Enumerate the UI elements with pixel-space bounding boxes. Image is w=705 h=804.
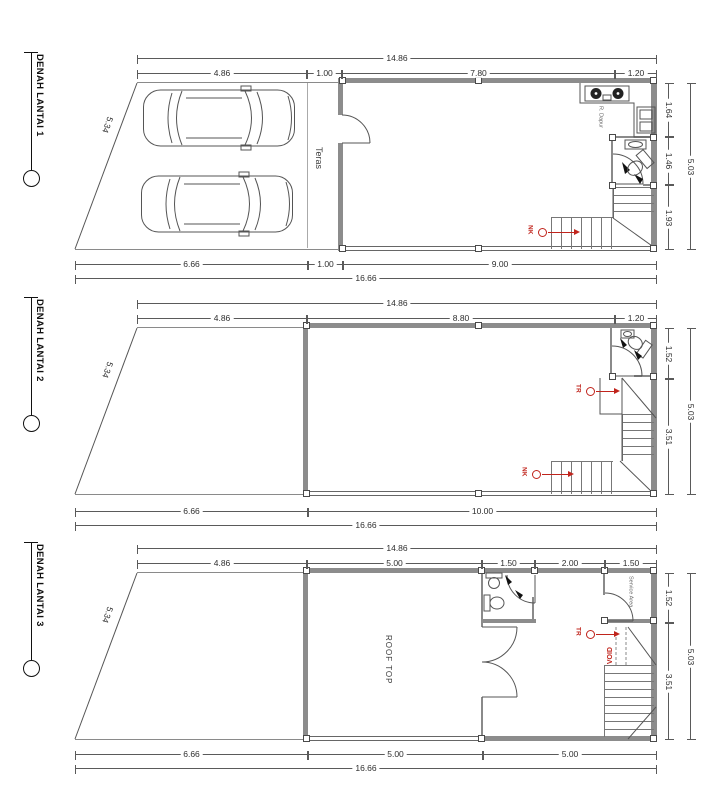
stair-direction-arrow <box>596 391 618 392</box>
dim-line: 3.51 <box>668 623 669 740</box>
dim-label: 5.00 <box>559 750 582 759</box>
dim-line: 1.93 <box>668 185 669 250</box>
grid-bubble-icon <box>23 660 40 677</box>
grid-bubble-icon <box>23 170 40 187</box>
toilet-icon <box>623 150 654 180</box>
stair-winder-line <box>620 378 656 494</box>
dim-label: 1.50 <box>497 559 520 568</box>
dim-label: 1.00 <box>313 69 336 78</box>
plan-drawing-layer <box>0 290 705 535</box>
column-marker <box>339 245 346 252</box>
stair-start-circle <box>586 387 595 396</box>
plot-slant-boundary <box>75 83 137 249</box>
stair-label: TR <box>574 384 581 393</box>
dim-label: 6.66 <box>180 260 203 269</box>
dim-line: 1.50 <box>605 563 657 564</box>
door-swing-arc <box>342 115 370 143</box>
dim-label: 5.00 <box>383 559 406 568</box>
column-marker <box>650 735 657 742</box>
stair-direction-arrow <box>542 474 572 475</box>
column-marker <box>650 245 657 252</box>
dim-label: 2.00 <box>559 559 582 568</box>
dim-line: 8.80 <box>307 318 615 319</box>
column-marker <box>303 735 310 742</box>
bath-sink-icon <box>486 573 502 589</box>
dim-line: 5.03 <box>690 83 691 250</box>
dim-line: 9.00 <box>343 264 657 265</box>
dim-label: 5.03 <box>687 155 696 178</box>
dim-line: 6.66 <box>75 264 308 265</box>
dim-line: 5.00 <box>308 754 483 755</box>
bath-sink-icon <box>625 140 646 149</box>
dim-line: 1.52 <box>668 573 669 623</box>
room-label-rooftop: ROOF TOP <box>384 635 392 685</box>
dim-label: 4.86 <box>211 314 234 323</box>
dim-line: 5.00 <box>307 563 482 564</box>
floor-title: DENAH LANTAI 3 <box>34 544 45 627</box>
stair-label: NK <box>520 467 527 476</box>
plan-drawing-layer <box>0 45 705 290</box>
dim-line: 14.86 <box>137 548 657 549</box>
door-leaf-mark <box>620 338 627 348</box>
column-marker <box>475 322 482 329</box>
column-marker <box>650 182 657 189</box>
car-icon <box>142 172 293 236</box>
dim-line: 5.03 <box>690 573 691 740</box>
column-marker <box>475 490 482 497</box>
column-marker <box>650 490 657 497</box>
column-marker <box>475 245 482 252</box>
toilet-icon <box>484 595 504 611</box>
column-marker <box>303 490 310 497</box>
dim-label: 16.66 <box>352 274 379 283</box>
dim-label: 4.86 <box>211 69 234 78</box>
dim-label: 6.66 <box>180 507 203 516</box>
dim-label: 14.86 <box>383 299 410 308</box>
stair-direction-arrow <box>596 634 618 635</box>
dim-line: 4.86 <box>137 563 307 564</box>
dim-line: 1.20 <box>615 73 657 74</box>
stair-start-circle <box>586 630 595 639</box>
dim-line: 2.00 <box>535 563 605 564</box>
column-marker <box>609 373 616 380</box>
column-marker <box>601 617 608 624</box>
dim-label: 9.00 <box>489 260 512 269</box>
column-marker <box>609 182 616 189</box>
stair-label: TR <box>574 627 581 636</box>
kitchen-sink-icon <box>637 107 655 133</box>
floor-plan-1: DENAH LANTAI 1 14.86 4.86 1.00 7.80 1.20… <box>0 45 705 290</box>
dim-label: 14.86 <box>383 54 410 63</box>
room-label-kitchen: R. Dapur <box>597 106 603 128</box>
dim-label: 1.20 <box>625 314 648 323</box>
dim-label: 1.20 <box>625 69 648 78</box>
plot-slant-boundary <box>75 328 137 494</box>
dim-label: 1.46 <box>665 150 674 173</box>
floor-title: DENAH LANTAI 1 <box>34 54 45 137</box>
dim-line: 1.00 <box>308 264 343 265</box>
dim-label: 1.00 <box>314 260 337 269</box>
dim-line: 6.66 <box>75 511 308 512</box>
dim-label: 5.03 <box>687 645 696 668</box>
dim-line: 1.50 <box>482 563 535 564</box>
dim-line: 1.00 <box>307 73 342 74</box>
dim-line: 10.00 <box>308 511 657 512</box>
dim-label: 8.80 <box>450 314 473 323</box>
dim-label: 16.66 <box>352 764 379 773</box>
door-leaf-mark <box>505 575 512 585</box>
grid-bubble-icon <box>23 415 40 432</box>
dim-line: 4.86 <box>137 73 307 74</box>
double-door-arc <box>482 627 517 662</box>
door-swing-arc <box>507 575 535 603</box>
car-icon <box>144 86 295 150</box>
dim-label: 5.03 <box>687 400 696 423</box>
dim-line: 1.46 <box>668 137 669 185</box>
dim-line: 1.20 <box>615 318 657 319</box>
dim-label: 6.66 <box>180 750 203 759</box>
dim-label: 10.00 <box>469 507 496 516</box>
column-marker <box>650 134 657 141</box>
dim-label: 5.00 <box>384 750 407 759</box>
dim-label: 1.52 <box>665 587 674 610</box>
title-leader-line <box>31 52 32 170</box>
double-door-arc <box>482 662 517 697</box>
column-marker <box>650 373 657 380</box>
dim-label: 1.50 <box>620 559 643 568</box>
room-label-teras: Teras <box>314 147 323 169</box>
floor-plan-2: DENAH LANTAI 2 14.86 4.86 8.80 1.20 1.52… <box>0 290 705 535</box>
stair-start-circle <box>538 228 547 237</box>
dim-line: 14.86 <box>137 303 657 304</box>
plot-slant-boundary <box>75 573 137 739</box>
dim-label: 16.66 <box>352 521 379 530</box>
column-marker <box>650 617 657 624</box>
dim-line: 16.66 <box>75 278 657 279</box>
dim-line: 5.03 <box>690 328 691 495</box>
stair-winder-line <box>613 186 655 248</box>
title-leader-line <box>31 542 32 660</box>
room-label-service-area: Service Area <box>627 576 633 607</box>
title-leader-line <box>31 297 32 415</box>
dim-label: 3.51 <box>665 426 674 449</box>
door-swing-arc <box>612 346 642 376</box>
dim-line: 16.66 <box>75 768 657 769</box>
dim-label: 1.64 <box>665 99 674 122</box>
floor-plan-3: DENAH LANTAI 3 14.86 4.86 5.00 1.50 2.00… <box>0 535 705 785</box>
dim-label: 3.51 <box>665 670 674 693</box>
dim-line: 1.64 <box>668 83 669 137</box>
dim-label: 1.52 <box>665 342 674 365</box>
stair-start-circle <box>532 470 541 479</box>
void-label: VOID <box>607 647 614 664</box>
stair-label: NK <box>526 225 533 234</box>
stove-icon <box>585 86 629 101</box>
stair-direction-arrow <box>548 232 578 233</box>
dim-label: 1.93 <box>665 206 674 229</box>
column-marker <box>609 134 616 141</box>
dim-line: 4.86 <box>137 318 307 319</box>
dim-line: 3.51 <box>668 379 669 495</box>
door-leaf-mark <box>622 162 630 174</box>
floor-title: DENAH LANTAI 2 <box>34 299 45 382</box>
dim-label: 14.86 <box>383 544 410 553</box>
dim-line: 14.86 <box>137 58 657 59</box>
dim-label: 7.80 <box>467 69 490 78</box>
dim-line: 7.80 <box>342 73 615 74</box>
dim-line: 16.66 <box>75 525 657 526</box>
dim-line: 6.66 <box>75 754 308 755</box>
dim-line: 1.52 <box>668 328 669 379</box>
floorplan-sheet: DENAH LANTAI 1 14.86 4.86 1.00 7.80 1.20… <box>0 0 705 804</box>
stair-winder-line <box>628 627 656 739</box>
dim-label: 4.86 <box>211 559 234 568</box>
column-marker <box>478 735 485 742</box>
plan-drawing-layer <box>0 535 705 785</box>
dim-line: 5.00 <box>483 754 657 755</box>
